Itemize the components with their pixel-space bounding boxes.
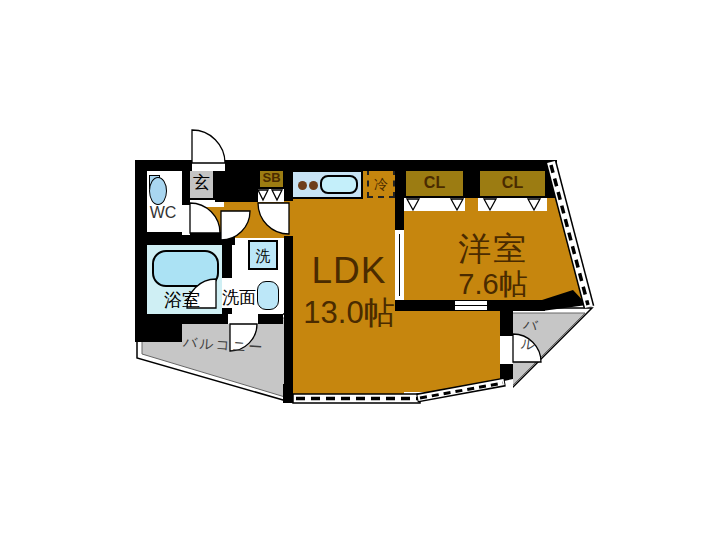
western-room-size-label: 7.6帖 [445,270,541,299]
diagonal-window-band [551,162,589,307]
ldk-size-label: 13.0帖 [284,297,414,328]
bottom-window-band [293,394,420,403]
washroom-label: 洗面 [222,289,260,306]
hall-door-arc [221,211,250,240]
bathroom-label: 浴室 [150,291,214,309]
wc-door-arc [190,203,220,233]
ldk-door-arc [258,203,289,234]
entrance-label: 玄 [188,174,215,191]
western-room-label: 洋室 [445,232,541,265]
entrance-door-arc [192,130,225,163]
closet-door-markers [258,190,540,210]
floor-plan: SB 冷 CL CL 洗 [0,0,719,539]
ldk-label: LDK [293,252,405,289]
wc-label: WC [143,205,183,221]
